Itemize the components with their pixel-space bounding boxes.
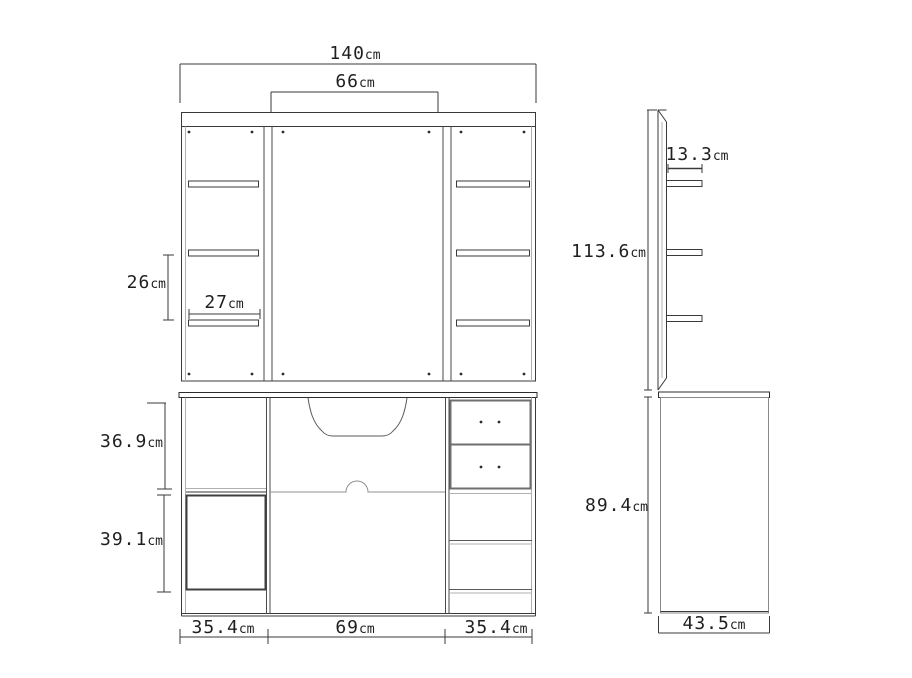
dim-bottom-right-width: 35.4cm bbox=[464, 619, 527, 637]
right-shelf-2 bbox=[457, 250, 530, 256]
side-cabinet-body bbox=[661, 398, 769, 614]
right-shelf-3 bbox=[457, 320, 530, 326]
left-shelf-1 bbox=[189, 181, 259, 187]
dim-shelf-gap: 26cm bbox=[127, 274, 166, 292]
left-shelf-3 bbox=[189, 320, 259, 326]
lower-divider-left bbox=[267, 398, 271, 614]
dim-side-shelf-depth-line bbox=[668, 164, 702, 173]
countertop-side bbox=[659, 392, 770, 398]
side-view bbox=[644, 110, 770, 633]
dim-bottom-left-width: 35.4cm bbox=[191, 619, 254, 637]
side-shelf-3 bbox=[667, 316, 703, 322]
dim-bottom-center-width: 69cm bbox=[335, 619, 374, 637]
upper-cabinet-outline bbox=[182, 113, 536, 382]
center-drawer-pull-notch bbox=[270, 481, 445, 492]
dim-mirror-width: 66cm bbox=[335, 73, 374, 91]
left-door-panel bbox=[187, 496, 266, 590]
countertop-front bbox=[179, 393, 537, 398]
left-shelf-2 bbox=[189, 250, 259, 256]
lower-cabinet bbox=[182, 398, 536, 617]
dim-overall-width: 140cm bbox=[329, 45, 380, 63]
technical-drawing-canvas bbox=[0, 0, 912, 678]
sink-cutout bbox=[308, 398, 407, 436]
dim-side-shelf-depth: 13.3cm bbox=[665, 146, 728, 164]
right-shelf-1 bbox=[457, 181, 530, 187]
right-open-shelf-lines bbox=[449, 494, 532, 594]
side-shelf-1 bbox=[667, 181, 703, 187]
dim-shelf-width: 27cm bbox=[204, 294, 243, 312]
dim-lower-section-height: 39.1cm bbox=[100, 531, 163, 549]
dim-side-depth: 43.5cm bbox=[682, 615, 745, 633]
front-view bbox=[147, 64, 537, 644]
side-shelf-2 bbox=[667, 250, 703, 256]
lower-divider-right bbox=[446, 398, 450, 614]
dim-upper-height: 113.6cm bbox=[571, 243, 646, 261]
dim-upper-section-height: 36.9cm bbox=[100, 433, 163, 451]
upper-cabinet bbox=[182, 113, 536, 382]
dim-lower-height: 89.4cm bbox=[585, 497, 648, 515]
dim-mirror-width-line bbox=[271, 92, 438, 112]
furniture-dimension-drawing: 140cm 66cm 26cm 27cm 36.9cm 39.1cm 35.4c… bbox=[0, 0, 912, 678]
